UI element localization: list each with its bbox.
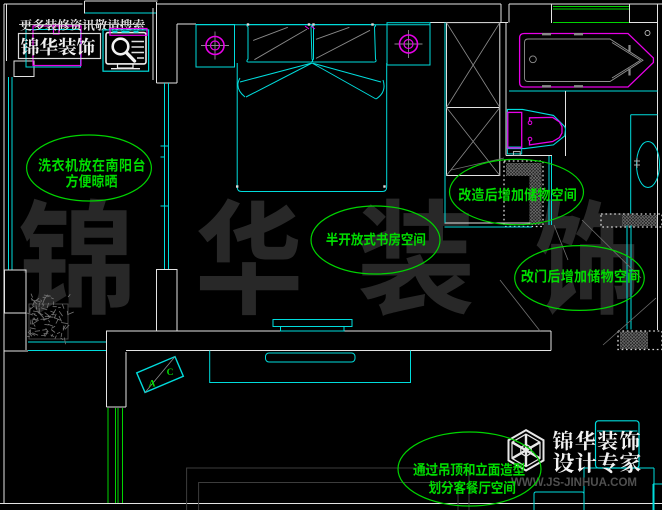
svg-text:WWW.JS-JINHUA.COM: WWW.JS-JINHUA.COM xyxy=(511,476,637,489)
svg-text:C: C xyxy=(167,368,174,378)
svg-text:A: A xyxy=(149,379,156,389)
